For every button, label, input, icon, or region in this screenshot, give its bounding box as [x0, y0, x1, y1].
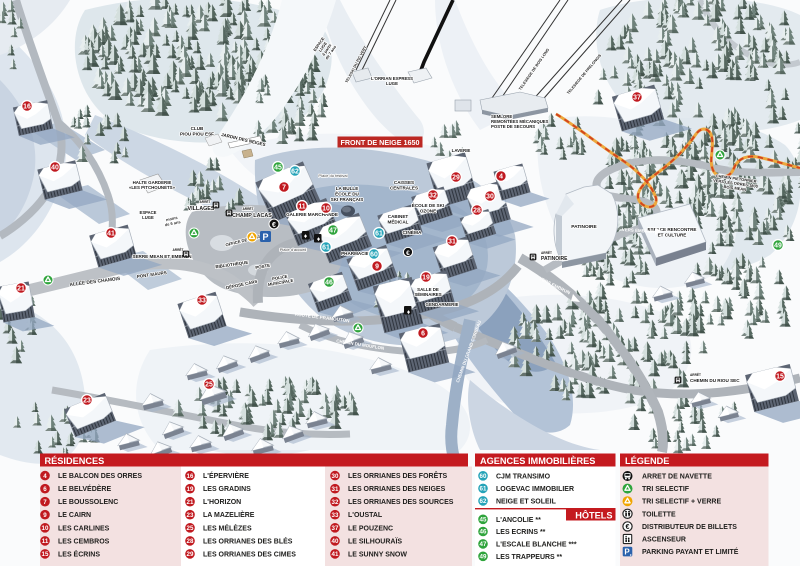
- svg-text:21: 21: [17, 285, 25, 292]
- svg-text:23: 23: [187, 512, 194, 519]
- svg-text:ASCENSEUR: ASCENSEUR: [642, 537, 686, 544]
- svg-text:PATINOIRE: PATINOIRE: [571, 224, 597, 230]
- svg-text:37: 37: [332, 525, 339, 532]
- svg-text:LE BELVÉDÈRE: LE BELVÉDÈRE: [58, 484, 111, 493]
- svg-text:LE CAIRN: LE CAIRN: [58, 512, 91, 519]
- svg-text:ARRET DE NAVETTE: ARRET DE NAVETTE: [642, 474, 712, 481]
- svg-text:9: 9: [43, 512, 47, 519]
- svg-text:€: €: [626, 522, 630, 531]
- svg-text:P: P: [262, 232, 268, 242]
- svg-text:LOGEVAC IMMOBILIER: LOGEVAC IMMOBILIER: [496, 486, 574, 493]
- svg-text:PARKING PAYANT ET LIMITÉ: PARKING PAYANT ET LIMITÉ: [642, 547, 739, 556]
- svg-text:28: 28: [473, 207, 481, 214]
- svg-text:60: 60: [370, 251, 378, 258]
- svg-text:28: 28: [187, 538, 194, 545]
- svg-text:LES ORRIANES DES SOURCES: LES ORRIANES DES SOURCES: [348, 499, 454, 506]
- svg-text:61: 61: [480, 486, 487, 493]
- svg-text:L'ANCOLIE **: L'ANCOLIE **: [496, 517, 541, 524]
- svg-text:TRI SELECTIF: TRI SELECTIF: [642, 486, 690, 493]
- svg-text:CHAMP LACAS: CHAMP LACAS: [232, 213, 272, 219]
- svg-text:61: 61: [322, 244, 330, 251]
- svg-text:31: 31: [448, 238, 456, 245]
- svg-text:L'HORIZON: L'HORIZON: [203, 499, 241, 506]
- svg-text:Place du festival: Place du festival: [318, 173, 347, 178]
- svg-text:49: 49: [480, 554, 487, 561]
- svg-text:16: 16: [187, 473, 194, 480]
- svg-text:LE BOUSSOLENC: LE BOUSSOLENC: [58, 499, 118, 506]
- svg-text:9: 9: [375, 263, 379, 270]
- svg-text:41: 41: [332, 551, 339, 558]
- svg-text:CHEMIN DU RIOU SEC: CHEMIN DU RIOU SEC: [690, 378, 740, 383]
- svg-text:LE POUZENC: LE POUZENC: [348, 525, 393, 532]
- svg-text:33: 33: [332, 512, 339, 519]
- svg-text:49: 49: [774, 242, 782, 249]
- svg-text:10: 10: [322, 205, 330, 212]
- svg-text:23: 23: [83, 397, 91, 404]
- svg-text:LE SILHOURAÏS: LE SILHOURAÏS: [348, 537, 402, 545]
- svg-text:10: 10: [42, 525, 49, 532]
- svg-text:LES CARLINES: LES CARLINES: [58, 525, 110, 532]
- svg-text:LES ORRIANES DES NEIGES: LES ORRIANES DES NEIGES: [348, 486, 446, 493]
- svg-text:DISTRIBUTEUR DE BILLETS: DISTRIBUTEUR DE BILLETS: [642, 524, 737, 531]
- svg-text:€: €: [406, 250, 410, 257]
- svg-text:25: 25: [187, 525, 194, 532]
- svg-text:CABINETMÉDICAL: CABINETMÉDICAL: [388, 214, 409, 224]
- svg-text:€: €: [272, 222, 276, 229]
- svg-text:LES ORRIANES DES BLÉS: LES ORRIANES DES BLÉS: [203, 536, 293, 545]
- svg-text:PATINOIRE: PATINOIRE: [541, 256, 568, 262]
- svg-text:6: 6: [43, 486, 47, 493]
- svg-text:LES TRAPPEURS **: LES TRAPPEURS **: [496, 554, 562, 561]
- svg-text:TOILETTE: TOILETTE: [642, 511, 676, 518]
- svg-text:7: 7: [43, 499, 47, 506]
- svg-text:33: 33: [198, 297, 206, 304]
- svg-text:ARRÊT: ARRÊT: [243, 206, 254, 211]
- svg-text:Place d'accueil: Place d'accueil: [280, 247, 307, 252]
- svg-text:FRONT DE NEIGE 1650: FRONT DE NEIGE 1650: [340, 138, 419, 147]
- svg-text:31: 31: [332, 486, 339, 493]
- svg-text:LES ECRINS **: LES ECRINS **: [496, 529, 546, 536]
- svg-text:GALERIE MARCHANDE: GALERIE MARCHANDE: [286, 212, 338, 217]
- svg-text:62: 62: [291, 168, 299, 175]
- svg-text:LÉGENDE: LÉGENDE: [625, 455, 669, 466]
- svg-text:ARRÊT: ARRÊT: [200, 199, 211, 204]
- svg-text:L'OUSTAL: L'OUSTAL: [348, 512, 383, 519]
- svg-text:LES ORRIANES DES CIMES: LES ORRIANES DES CIMES: [203, 551, 296, 558]
- svg-text:19: 19: [187, 486, 194, 493]
- svg-text:HALTE GARDERIE«LES PITCHOUNETS: HALTE GARDERIE«LES PITCHOUNETS»: [129, 180, 176, 190]
- svg-text:41: 41: [107, 230, 115, 237]
- svg-text:ARRÊT: ARRÊT: [173, 247, 184, 252]
- svg-text:ARRÊT: ARRÊT: [690, 372, 701, 377]
- svg-text:LES ÉCRINS: LES ÉCRINS: [58, 549, 100, 558]
- svg-text:32: 32: [332, 499, 339, 506]
- svg-text:LE BALCON DES ORRES: LE BALCON DES ORRES: [58, 473, 142, 480]
- svg-text:CJM TRANSIMO: CJM TRANSIMO: [496, 473, 551, 480]
- svg-text:32: 32: [429, 192, 437, 199]
- svg-text:4: 4: [43, 473, 47, 480]
- svg-text:6: 6: [421, 330, 425, 337]
- svg-text:47: 47: [480, 541, 487, 548]
- svg-text:RÉSIDENCES: RÉSIDENCES: [45, 455, 105, 466]
- svg-text:19: 19: [422, 274, 430, 281]
- svg-text:LA MAZELIÈRE: LA MAZELIÈRE: [203, 510, 255, 519]
- svg-text:LAVERIE: LAVERIE: [452, 148, 471, 153]
- svg-text:45: 45: [274, 164, 282, 171]
- svg-text:L'ÉPERVIÈRE: L'ÉPERVIÈRE: [203, 471, 249, 480]
- svg-text:46: 46: [325, 279, 333, 286]
- svg-text:45: 45: [480, 517, 487, 524]
- svg-text:30: 30: [332, 473, 339, 480]
- svg-text:11: 11: [42, 538, 49, 545]
- svg-text:60: 60: [480, 473, 487, 480]
- svg-text:HÔTELS: HÔTELS: [575, 509, 612, 520]
- svg-text:GENDARMERIE: GENDARMERIE: [426, 302, 459, 307]
- svg-text:7: 7: [282, 184, 286, 191]
- svg-text:40: 40: [51, 164, 59, 171]
- svg-text:LES ORRIANES DES FORÊTS: LES ORRIANES DES FORÊTS: [348, 471, 448, 480]
- svg-text:TRI SELECTIF + VERRE: TRI SELECTIF + VERRE: [642, 499, 721, 506]
- svg-text:29: 29: [187, 551, 194, 558]
- svg-text:29: 29: [452, 174, 460, 181]
- svg-text:CAISSESCENTRALES: CAISSESCENTRALES: [390, 180, 418, 190]
- svg-text:4: 4: [499, 173, 503, 180]
- svg-text:AGENCES IMMOBILIÈRES: AGENCES IMMOBILIÈRES: [480, 455, 595, 466]
- svg-text:47: 47: [329, 227, 337, 234]
- svg-text:46: 46: [480, 529, 487, 536]
- svg-text:ARRÊT: ARRÊT: [541, 250, 552, 255]
- svg-text:LES GRADINS: LES GRADINS: [203, 486, 251, 493]
- svg-text:LES MÉLÈZES: LES MÉLÈZES: [203, 523, 252, 532]
- svg-text:P: P: [624, 547, 630, 556]
- svg-text:PHARMACIE: PHARMACIE: [341, 251, 369, 256]
- svg-text:37: 37: [633, 94, 641, 101]
- svg-text:15: 15: [776, 373, 784, 380]
- svg-text:LE SUNNY SNOW: LE SUNNY SNOW: [348, 551, 407, 558]
- svg-text:30: 30: [486, 193, 494, 200]
- svg-text:15: 15: [42, 551, 49, 558]
- svg-text:VILLAGES: VILLAGES: [188, 206, 215, 212]
- svg-text:NEIGE ET SOLEIL: NEIGE ET SOLEIL: [496, 498, 557, 505]
- svg-text:25: 25: [205, 381, 213, 388]
- svg-text:LES CEMBROS: LES CEMBROS: [58, 538, 110, 545]
- svg-text:11: 11: [298, 203, 305, 210]
- svg-text:62: 62: [480, 498, 487, 505]
- svg-text:61: 61: [375, 230, 383, 237]
- svg-text:SALLE DESÉMINAIRES: SALLE DESÉMINAIRES: [414, 287, 441, 297]
- svg-text:40: 40: [332, 538, 339, 545]
- svg-text:L'ESCALE BLANCHE ***: L'ESCALE BLANCHE ***: [496, 541, 577, 548]
- svg-text:21: 21: [187, 499, 194, 506]
- svg-text:16: 16: [23, 103, 31, 110]
